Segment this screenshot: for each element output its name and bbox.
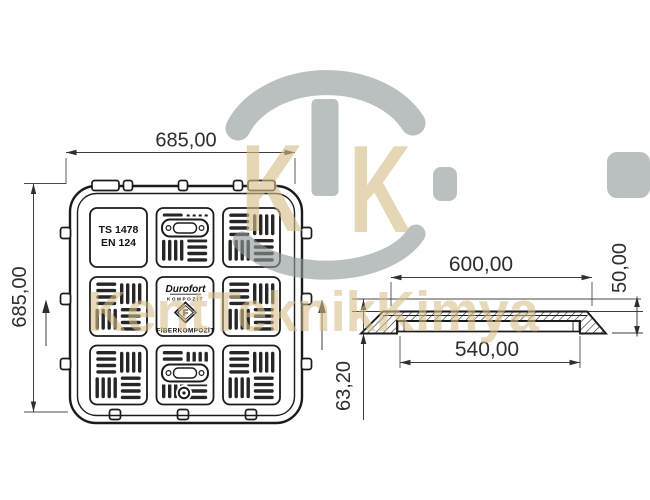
tread-bar [114, 377, 117, 398]
tread-bar [96, 351, 116, 354]
tread-bar [254, 389, 274, 392]
tread-bar [271, 352, 274, 373]
tread-bar [126, 352, 129, 373]
tread-bar [121, 396, 141, 399]
tread-bar [162, 240, 165, 261]
lift-slot-pin [166, 226, 171, 231]
watermark-wordmark: KentTeknikKimya [87, 280, 540, 344]
tab-right [302, 359, 312, 370]
tread-bar [108, 377, 111, 398]
tread-bar [187, 245, 207, 248]
watermark-letter-k-left: K [241, 120, 303, 258]
tread-bar [121, 383, 141, 386]
watermark-t-stem [312, 99, 339, 196]
tab-left [61, 294, 71, 305]
tab-right [302, 228, 312, 239]
tread-bar [254, 396, 274, 399]
dimension-plan-height: 685,00 [9, 184, 68, 413]
tread-bar [168, 240, 171, 261]
tread-bar [120, 352, 123, 373]
dim-section-depth-value: 63,20 [333, 361, 355, 411]
tab-left [61, 359, 71, 370]
tab-top [124, 181, 133, 191]
tread-bar [229, 351, 249, 354]
tread-bar [254, 377, 274, 380]
dim-section-outer-value: 600,00 [449, 253, 513, 276]
tread-bar [132, 352, 135, 373]
tread-bar [187, 239, 207, 242]
tread-bar [235, 377, 238, 398]
tread-bar [163, 351, 183, 354]
tread-bar [121, 377, 141, 380]
tread-bar [229, 377, 232, 398]
dimension-section-height: 50,00 [609, 243, 640, 337]
tread-bar [241, 377, 244, 398]
technical-drawing-page: TS 1478 EN 124 Durofort KOMPOZİT F FİBER… [0, 0, 650, 500]
tread-bar [187, 252, 207, 255]
tread-bar [180, 240, 183, 261]
tread-bar [96, 364, 116, 367]
tread-bar [187, 258, 207, 261]
tread-bar [253, 352, 256, 373]
tread-bar [138, 352, 141, 373]
section-arrow-left [42, 300, 50, 347]
tread-bar [259, 352, 262, 373]
tread-bar [121, 389, 141, 392]
tread-bar [163, 357, 183, 360]
standard-label-line1: TS 1478 [99, 224, 139, 236]
watermark-letter-k-right: K [349, 121, 411, 259]
lift-slot-pin [199, 226, 204, 231]
lift-slot-pin [166, 371, 171, 376]
tab-bottom [178, 410, 189, 420]
manhole-cover-drawing: TS 1478 EN 124 Durofort KOMPOZİT F FİBER… [0, 0, 650, 500]
tread-bar [163, 214, 183, 217]
tab-left [61, 228, 71, 239]
tab-bottom [110, 410, 121, 420]
tread-bar [102, 377, 105, 398]
tread-bar [229, 370, 249, 373]
tread-bar [96, 357, 116, 360]
dim-section-height-value: 50,00 [609, 243, 631, 293]
tab-top [92, 181, 119, 191]
watermark-fragment-right [607, 152, 650, 198]
tread-bar [229, 240, 232, 261]
dim-plan-width-value: 685,00 [155, 130, 216, 152]
tread-bar [229, 364, 249, 367]
tread-bar [247, 377, 250, 398]
lock-hole-center [182, 391, 185, 394]
dim-plan-height-value: 685,00 [9, 266, 31, 327]
tread-bar [96, 370, 116, 373]
watermark-fragment-small [433, 167, 457, 201]
tab-bottom [246, 410, 257, 420]
tread-bar [254, 383, 274, 386]
tab-top [179, 181, 188, 191]
tread-bar [174, 240, 177, 261]
standard-label-line2: EN 124 [101, 237, 136, 249]
tread-bar [96, 377, 99, 398]
tread-bar [229, 357, 249, 360]
lift-slot-pin [199, 371, 204, 376]
tread-bar [265, 352, 268, 373]
